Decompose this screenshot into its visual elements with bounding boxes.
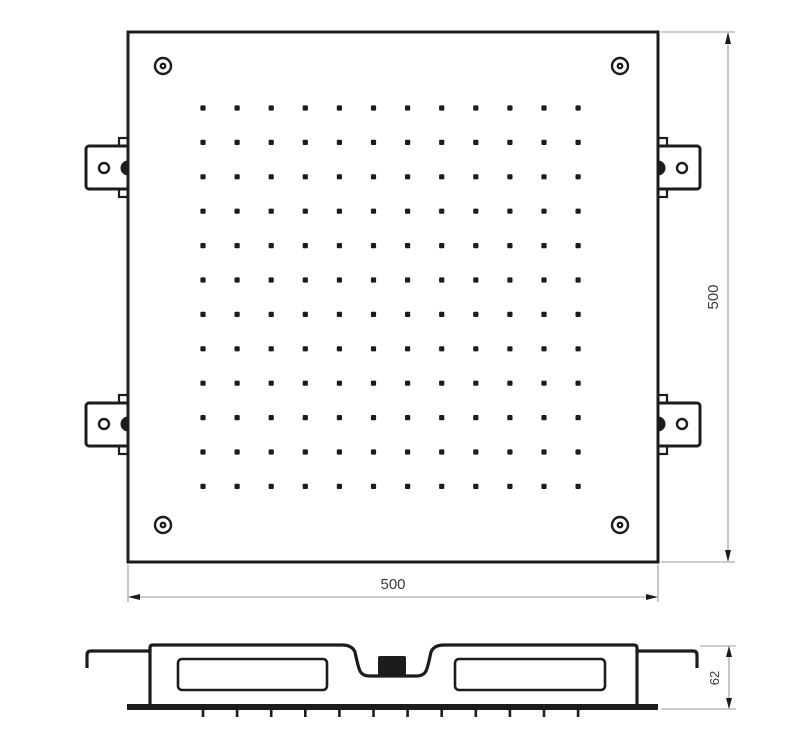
nozzle-dot [473, 484, 478, 489]
nozzle-dot [371, 415, 376, 420]
nozzle-dot [576, 243, 581, 248]
nozzle-dot [303, 381, 308, 386]
nozzle-dot [439, 140, 444, 145]
bracket-hole-icon [677, 163, 687, 173]
nozzle-dot [439, 105, 444, 110]
nozzle-dot [541, 277, 546, 282]
nozzle-dot [507, 174, 512, 179]
nozzle-dot [235, 312, 240, 317]
nozzle-dot [405, 140, 410, 145]
bracket-hole-icon [677, 419, 687, 429]
side-view [87, 645, 697, 717]
nozzle-dot [200, 449, 205, 454]
nozzle-dot [576, 346, 581, 351]
nozzle-dot [200, 105, 205, 110]
nozzle-dot [405, 312, 410, 317]
nozzle-dot [405, 174, 410, 179]
ceiling-flange-left [87, 651, 151, 668]
nozzle-dot [405, 484, 410, 489]
nozzle-dot [235, 174, 240, 179]
nozzle-dot [439, 243, 444, 248]
nozzle-dot [337, 243, 342, 248]
nozzle-dot [269, 449, 274, 454]
nozzle-dot [507, 277, 512, 282]
nozzle-dot [337, 312, 342, 317]
dimension-label-height: 500 [705, 284, 722, 309]
nozzle-dot [439, 381, 444, 386]
nozzle-dot [269, 174, 274, 179]
nozzle-dot [507, 381, 512, 386]
nozzle-dot [200, 312, 205, 317]
ceiling-flange-right [636, 651, 697, 668]
nozzle-dot [473, 381, 478, 386]
showerhead-panel [128, 32, 658, 562]
nozzle-dot [371, 105, 376, 110]
nozzle-dot [200, 174, 205, 179]
nozzle-dot [235, 346, 240, 351]
arrowhead-down-icon [726, 698, 732, 709]
nozzle-dot [576, 209, 581, 214]
nozzle-dot [337, 346, 342, 351]
nozzle-dot [337, 449, 342, 454]
nozzle-dot [507, 449, 512, 454]
nozzle-dot [371, 174, 376, 179]
nozzle-dot [405, 449, 410, 454]
nozzle-dot [507, 484, 512, 489]
nozzle-dot [405, 381, 410, 386]
nozzle-dot [269, 312, 274, 317]
face-plate [127, 704, 658, 710]
nozzle-dot [507, 140, 512, 145]
technical-drawing-canvas: 500 500 62 [0, 0, 800, 737]
arrowhead-up-icon [725, 32, 731, 44]
nozzle-dot [269, 484, 274, 489]
nozzle-dot [576, 484, 581, 489]
nozzle-dot [541, 140, 546, 145]
bracket-hole-icon [99, 419, 109, 429]
nozzle-dot [235, 209, 240, 214]
nozzle-dot [235, 243, 240, 248]
water-inlet-connector [378, 656, 406, 676]
nozzle-dot [405, 209, 410, 214]
nozzle-ticks [203, 710, 578, 717]
nozzle-dot [200, 140, 205, 145]
nozzle-dot [200, 346, 205, 351]
water-chamber-left [178, 659, 327, 690]
nozzle-dot [507, 312, 512, 317]
nozzle-dot [235, 140, 240, 145]
nozzle-dot [337, 105, 342, 110]
water-chamber-right [455, 659, 605, 690]
nozzle-dot [235, 484, 240, 489]
nozzle-dot [303, 209, 308, 214]
nozzle-dot [405, 243, 410, 248]
nozzle-dot [269, 346, 274, 351]
dimension-label-width: 500 [380, 576, 405, 593]
arrowhead-up-icon [726, 646, 732, 657]
nozzle-dot [269, 381, 274, 386]
nozzle-dot [303, 174, 308, 179]
nozzle-dot [405, 415, 410, 420]
nozzle-dot [303, 140, 308, 145]
nozzle-dot [303, 105, 308, 110]
nozzle-dot [576, 449, 581, 454]
nozzle-dot [507, 346, 512, 351]
nozzle-dot [200, 209, 205, 214]
corner-screw-icon [155, 517, 171, 533]
nozzle-dot [473, 449, 478, 454]
nozzle-dot [303, 277, 308, 282]
nozzle-dot [473, 243, 478, 248]
nozzle-dot [473, 140, 478, 145]
nozzle-dot [541, 415, 546, 420]
nozzle-dot [337, 381, 342, 386]
nozzle-dot [405, 346, 410, 351]
nozzle-dot [371, 277, 376, 282]
nozzle-dot [235, 381, 240, 386]
nozzle-dot [269, 209, 274, 214]
nozzle-dot [371, 243, 376, 248]
nozzle-dot [576, 140, 581, 145]
nozzle-dot [371, 484, 376, 489]
nozzle-dot [473, 312, 478, 317]
nozzle-dot [439, 174, 444, 179]
nozzle-dot [235, 449, 240, 454]
nozzle-dot [235, 277, 240, 282]
nozzle-dot [507, 243, 512, 248]
nozzle-dot [541, 243, 546, 248]
nozzle-dot [507, 209, 512, 214]
nozzle-dot [576, 277, 581, 282]
nozzle-dot [473, 105, 478, 110]
nozzle-dot [337, 209, 342, 214]
nozzle-dot [541, 209, 546, 214]
nozzle-dot [371, 346, 376, 351]
nozzle-dot [371, 209, 376, 214]
nozzle-dot [337, 415, 342, 420]
nozzle-dot [541, 346, 546, 351]
nozzle-dot [439, 449, 444, 454]
nozzle-dot [269, 105, 274, 110]
nozzle-dot [439, 484, 444, 489]
corner-screw-icon [155, 58, 171, 74]
nozzle-dot [473, 174, 478, 179]
nozzle-dot [269, 415, 274, 420]
nozzle-dot [541, 381, 546, 386]
nozzle-dot [371, 140, 376, 145]
nozzle-dot [439, 277, 444, 282]
nozzle-dot [439, 312, 444, 317]
nozzle-dot [200, 415, 205, 420]
nozzle-dot [200, 484, 205, 489]
nozzle-dot [507, 105, 512, 110]
arrowhead-down-icon [725, 550, 731, 562]
nozzle-dot [303, 243, 308, 248]
nozzle-dot [576, 174, 581, 179]
nozzle-dot [473, 277, 478, 282]
dimension-label-depth: 62 [707, 671, 722, 685]
nozzle-dot [269, 140, 274, 145]
nozzle-dot [269, 243, 274, 248]
nozzle-dot [235, 415, 240, 420]
nozzle-dot [576, 381, 581, 386]
nozzle-dot [507, 415, 512, 420]
nozzle-dot [473, 415, 478, 420]
arrowhead-right-icon [646, 594, 658, 600]
nozzle-dot [303, 346, 308, 351]
bracket-hole-icon [99, 163, 109, 173]
nozzle-dot [541, 312, 546, 317]
nozzle-dot [200, 277, 205, 282]
nozzle-dot [576, 312, 581, 317]
nozzle-dot [235, 105, 240, 110]
nozzle-dot [541, 105, 546, 110]
nozzle-dot [405, 277, 410, 282]
nozzle-dot [269, 277, 274, 282]
nozzle-dot [303, 312, 308, 317]
nozzle-dot [473, 209, 478, 214]
corner-screw-icon [612, 517, 628, 533]
nozzle-dot [200, 381, 205, 386]
nozzle-dot [576, 415, 581, 420]
top-view [86, 32, 700, 562]
nozzle-dot [439, 346, 444, 351]
nozzle-dot [371, 381, 376, 386]
nozzle-dot [337, 174, 342, 179]
dimension-height-500 [661, 32, 735, 562]
nozzle-dot [200, 243, 205, 248]
nozzle-dot [371, 449, 376, 454]
nozzle-dot [337, 484, 342, 489]
nozzle-dot [439, 415, 444, 420]
nozzle-dot [541, 484, 546, 489]
nozzle-dot [337, 140, 342, 145]
corner-screw-icon [612, 58, 628, 74]
nozzle-dot [439, 209, 444, 214]
nozzle-dot [576, 105, 581, 110]
nozzle-dot [405, 105, 410, 110]
nozzle-dot [303, 449, 308, 454]
nozzle-dot [337, 277, 342, 282]
arrowhead-left-icon [128, 594, 140, 600]
nozzle-dot [303, 484, 308, 489]
nozzle-dot [303, 415, 308, 420]
nozzle-dot [371, 312, 376, 317]
nozzle-dot [541, 174, 546, 179]
nozzle-dot [541, 449, 546, 454]
showerhead-drawing: 500 500 62 [0, 0, 800, 737]
nozzle-dot [473, 346, 478, 351]
